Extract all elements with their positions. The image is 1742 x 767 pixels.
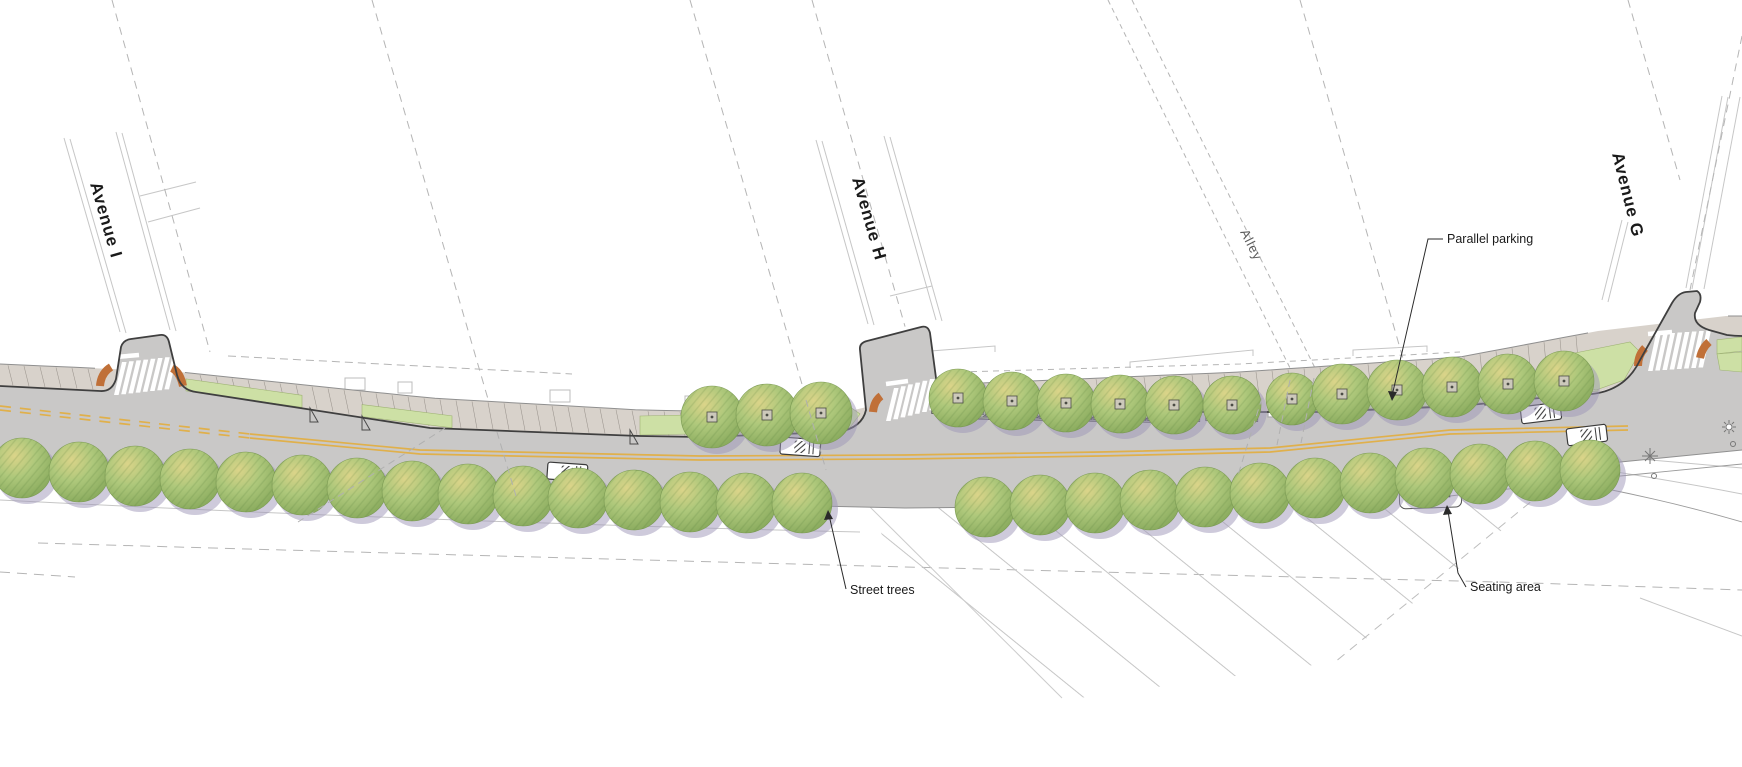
property-line — [116, 132, 170, 330]
property-line — [122, 133, 176, 331]
property-line — [1686, 96, 1722, 288]
tree-grate — [953, 393, 963, 403]
label-avenue-h: Avenue H — [848, 175, 890, 263]
label-avenue-i: Avenue I — [86, 180, 126, 260]
tree-grate — [1007, 396, 1017, 406]
tree-grate — [1115, 399, 1125, 409]
property-line-dashed — [1300, 0, 1404, 362]
property-line-dashed — [0, 572, 75, 577]
windshield-hatch — [1580, 428, 1592, 441]
tree-grate — [707, 412, 717, 422]
property-line-dashed — [1628, 0, 1680, 180]
property-line — [1640, 598, 1742, 636]
property-line-dashed — [1108, 0, 1292, 372]
property-line — [890, 137, 942, 321]
tree-grate — [1447, 382, 1457, 392]
label-avenue-g: Avenue G — [1608, 150, 1647, 239]
streetscape-plan: Avenue I Avenue H Avenue G Alley Paralle… — [0, 0, 1742, 767]
property-line — [890, 286, 932, 296]
property-line — [140, 182, 196, 196]
label-alley: Alley — [1237, 227, 1265, 263]
annotation-parallel-parking-text: Parallel parking — [1447, 232, 1533, 246]
windshield-hatch — [794, 440, 806, 453]
property-line — [148, 208, 200, 222]
tree-grate — [1287, 394, 1297, 404]
property-line-dashed — [112, 0, 210, 352]
property-line-dashed — [228, 356, 572, 374]
tree-grate — [1227, 400, 1237, 410]
planting-strip — [1717, 337, 1742, 354]
annotation-street-trees-text: Street trees — [850, 583, 915, 597]
property-line-dashed — [1132, 0, 1316, 370]
annotation-seating-area-text: Seating area — [1470, 580, 1541, 594]
tree-grate — [762, 410, 772, 420]
property-line-dashed — [1690, 36, 1742, 290]
building-stoop — [398, 382, 412, 393]
property-line-dashed — [690, 0, 806, 398]
property-line-dashed — [372, 0, 497, 430]
tree-grate — [1337, 389, 1347, 399]
tree-grate — [1169, 400, 1179, 410]
property-line — [884, 136, 936, 320]
plan-drawing: Avenue I Avenue H Avenue G Alley Paralle… — [0, 0, 1742, 767]
tree-grate — [1061, 398, 1071, 408]
building-stoop — [550, 390, 570, 402]
street-labels: Avenue I Avenue H Avenue G Alley — [86, 150, 1647, 263]
tree-grate — [1559, 376, 1569, 386]
tree-grate — [816, 408, 826, 418]
tree-grate — [1503, 379, 1513, 389]
building-stoop — [345, 378, 365, 390]
